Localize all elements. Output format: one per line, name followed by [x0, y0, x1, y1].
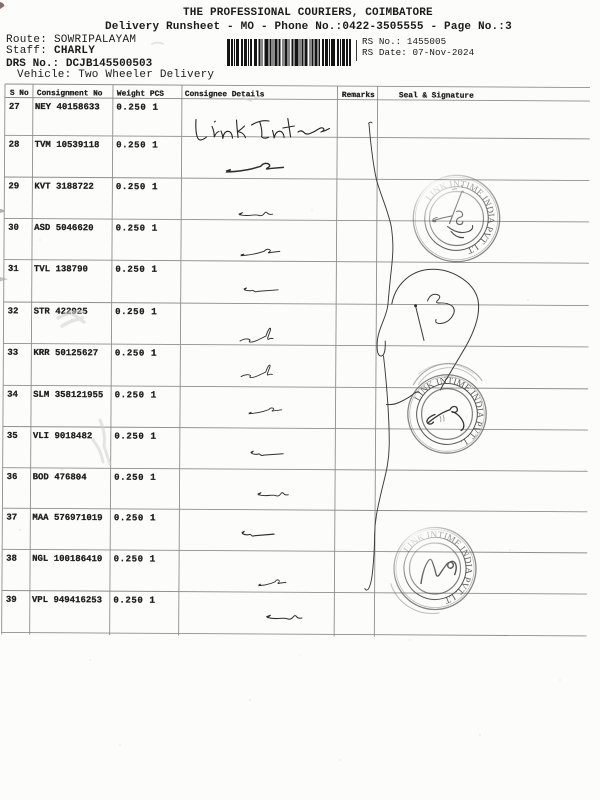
svg-text:37: 37	[6, 513, 17, 523]
svg-text:34: 34	[7, 390, 18, 400]
svg-text:Consignment No: Consignment No	[37, 90, 103, 98]
svg-text:31: 31	[8, 264, 19, 274]
svg-text:38: 38	[6, 554, 17, 564]
svg-text:1: 1	[150, 553, 156, 564]
svg-text:0.250: 0.250	[116, 182, 146, 192]
svg-text:0.250: 0.250	[115, 265, 145, 275]
svg-text:NEY 40158633: NEY 40158633	[35, 102, 100, 112]
svg-text:Consignee Details: Consignee Details	[185, 91, 265, 99]
svg-text:33: 33	[7, 348, 18, 358]
svg-text:27: 27	[9, 102, 20, 112]
svg-text:SLM 358121955: SLM 358121955	[33, 390, 103, 400]
svg-text:0.250: 0.250	[114, 431, 144, 441]
svg-text:0.250: 0.250	[115, 390, 145, 400]
svg-text:Remarks: Remarks	[342, 92, 375, 100]
svg-text:KRR 50125627: KRR 50125627	[33, 348, 98, 358]
svg-text:32: 32	[8, 306, 19, 316]
svg-text:1: 1	[151, 348, 157, 359]
svg-text:29: 29	[8, 181, 19, 191]
svg-text:ASD 5046620: ASD 5046620	[34, 223, 93, 233]
svg-text:S No: S No	[10, 90, 29, 98]
svg-text:28: 28	[9, 140, 20, 150]
svg-text:0.250: 0.250	[116, 223, 146, 233]
svg-text:0.250: 0.250	[113, 595, 143, 605]
svg-text:1: 1	[150, 472, 156, 483]
svg-text:0.250: 0.250	[115, 307, 145, 317]
svg-text:0.250: 0.250	[115, 348, 145, 358]
svg-text:36: 36	[7, 472, 18, 482]
svg-text:TVM 10539118: TVM 10539118	[35, 140, 100, 150]
svg-text:1: 1	[152, 140, 158, 151]
svg-text:Seal & Signature: Seal & Signature	[399, 92, 474, 100]
svg-text:VLI 9018482: VLI 9018482	[33, 431, 92, 441]
svg-text:1: 1	[151, 306, 157, 317]
svg-text:KVT 3188722: KVT 3188722	[34, 181, 93, 191]
svg-text:1: 1	[152, 102, 158, 113]
svg-text:BOD 476804: BOD 476804	[33, 472, 88, 482]
svg-text:1: 1	[151, 264, 157, 275]
svg-text:35: 35	[7, 431, 18, 441]
svg-text:1: 1	[150, 431, 156, 442]
svg-text:TVL 138790: TVL 138790	[34, 264, 88, 274]
svg-text:0.250: 0.250	[116, 140, 146, 150]
svg-text:1: 1	[152, 181, 158, 192]
svg-text:1: 1	[150, 512, 156, 523]
svg-text:1: 1	[152, 223, 158, 234]
svg-text:MAA 576971019: MAA 576971019	[32, 513, 102, 523]
svg-text:VPL 949416253: VPL 949416253	[32, 595, 102, 605]
svg-text:0.250: 0.250	[116, 102, 146, 112]
svg-text:39: 39	[6, 595, 17, 605]
svg-text:0.250: 0.250	[114, 513, 144, 523]
svg-text:1: 1	[151, 389, 157, 400]
svg-text:LINK INTIME INDIA PVT. L: LINK INTIME INDIA PVT. L	[413, 376, 484, 447]
svg-text:0.250: 0.250	[114, 554, 144, 564]
svg-text:Weight: Weight	[117, 90, 145, 98]
svg-text:0.250: 0.250	[114, 473, 144, 483]
svg-text:1: 1	[149, 595, 155, 606]
svg-text:NGL 100186410: NGL 100186410	[32, 554, 102, 564]
svg-text:PCS: PCS	[150, 91, 164, 99]
svg-text:30: 30	[8, 223, 19, 233]
